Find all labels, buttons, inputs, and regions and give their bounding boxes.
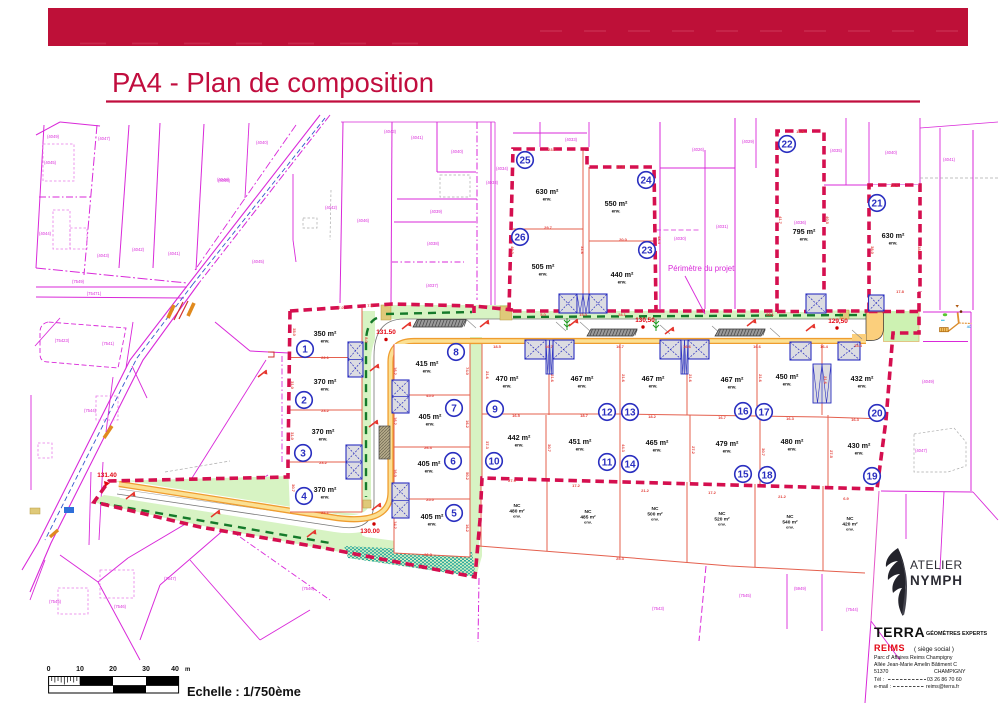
svg-text:31.0: 31.0 (290, 381, 295, 390)
svg-text:(4040): (4040) (256, 140, 269, 145)
svg-text:(7541): (7541) (102, 341, 115, 346)
svg-text:(4036): (4036) (794, 220, 807, 225)
svg-text:env.: env. (800, 237, 809, 242)
svg-text:(4031): (4031) (716, 224, 729, 229)
svg-text:20: 20 (109, 666, 117, 673)
svg-text:Tél :: Tél : (874, 677, 884, 683)
svg-text:630 m²: 630 m² (882, 231, 905, 240)
svg-text:env.: env. (783, 382, 792, 387)
svg-text:10: 10 (76, 666, 84, 673)
svg-text:26.3: 26.3 (424, 445, 433, 450)
svg-text:23: 23 (641, 245, 653, 256)
svg-text:( siège social ): ( siège social ) (914, 646, 954, 653)
svg-text:(7546): (7546) (302, 586, 315, 591)
svg-text:26.3: 26.3 (424, 552, 433, 557)
svg-text:21.6: 21.6 (485, 371, 490, 380)
svg-text:NC: NC (719, 511, 726, 517)
svg-text:(4042): (4042) (325, 205, 338, 210)
svg-text:env.: env. (618, 280, 627, 285)
svg-text:16.6: 16.6 (683, 344, 692, 349)
svg-text:465 m²: 465 m² (646, 438, 669, 447)
svg-text:48.4: 48.4 (657, 236, 662, 245)
svg-text:27.9: 27.9 (508, 478, 517, 483)
svg-text:3: 3 (300, 448, 306, 459)
svg-text:TERRA: TERRA (874, 624, 925, 640)
svg-text:NC: NC (652, 506, 659, 512)
svg-text:(7547): (7547) (164, 576, 177, 581)
svg-text:24: 24 (640, 175, 652, 186)
svg-text:(4037): (4037) (426, 283, 439, 288)
svg-text:405 m²: 405 m² (419, 412, 442, 421)
svg-text:(4044): (4044) (39, 231, 52, 236)
svg-text:27.2: 27.2 (691, 446, 696, 455)
svg-text:27.5: 27.5 (829, 450, 834, 459)
svg-text:467 m²: 467 m² (721, 375, 744, 384)
svg-text:15: 15 (737, 469, 749, 480)
svg-text:16.7: 16.7 (545, 344, 554, 349)
svg-text:21.6: 21.6 (688, 374, 693, 383)
svg-text:16.0: 16.0 (393, 469, 398, 478)
svg-text:(4040): (4040) (885, 150, 898, 155)
svg-text:74.0: 74.0 (465, 367, 470, 376)
svg-text:17.2: 17.2 (572, 483, 581, 488)
svg-text:22: 22 (781, 139, 793, 150)
svg-text:(4041): (4041) (168, 251, 181, 256)
svg-text:(4042): (4042) (132, 247, 145, 252)
svg-text:(4033): (4033) (565, 137, 578, 142)
svg-text:40: 40 (171, 666, 179, 673)
svg-text:env.: env. (889, 241, 898, 246)
svg-text:17.3: 17.3 (616, 164, 625, 169)
svg-text:12: 12 (601, 407, 613, 418)
svg-text:(4043): (4043) (97, 253, 110, 258)
svg-text:16.2: 16.2 (465, 524, 470, 533)
svg-text:(4047): (4047) (915, 448, 928, 453)
svg-text:(7544): (7544) (846, 607, 859, 612)
svg-text:38.2: 38.2 (917, 246, 922, 255)
svg-text:20.0: 20.0 (619, 237, 628, 242)
svg-text:(4049): (4049) (922, 379, 935, 384)
svg-text:(7545): (7545) (49, 599, 62, 604)
svg-text:430 m²: 430 m² (848, 441, 871, 450)
svg-text:reims@terra.fr: reims@terra.fr (926, 684, 959, 690)
svg-text:(7543): (7543) (652, 606, 665, 611)
svg-text:38.0: 38.0 (870, 246, 875, 255)
svg-text:(75471): (75471) (87, 291, 102, 296)
svg-text:10: 10 (488, 456, 500, 467)
svg-text:ATELIER: ATELIER (910, 558, 963, 572)
svg-text:(4038): (4038) (427, 241, 440, 246)
svg-text:41.7: 41.7 (778, 216, 783, 225)
svg-text:23.2: 23.2 (319, 460, 328, 465)
svg-text:18: 18 (761, 470, 773, 481)
svg-text:17: 17 (758, 407, 770, 418)
svg-text:370 m²: 370 m² (314, 377, 337, 386)
svg-text:25.0: 25.0 (426, 497, 435, 502)
svg-text:env.: env. (786, 525, 794, 530)
svg-text:8.0: 8.0 (364, 337, 369, 343)
svg-text:PA4 - Plan de composition: PA4 - Plan de composition (112, 67, 434, 98)
svg-text:4C: 4C (967, 325, 972, 329)
svg-text:(5949): (5949) (794, 586, 807, 591)
svg-text:(4047): (4047) (98, 136, 111, 141)
svg-text:17.8: 17.8 (896, 289, 905, 294)
svg-text:CHAMPIGNY: CHAMPIGNY (934, 669, 966, 675)
svg-text:550 m²: 550 m² (605, 199, 628, 208)
svg-text:2: 2 (301, 395, 307, 406)
svg-text:env.: env. (543, 197, 552, 202)
svg-text:16: 16 (737, 406, 749, 417)
svg-text:18.7: 18.7 (580, 413, 589, 418)
svg-text:25.3: 25.3 (616, 556, 625, 561)
svg-text:env.: env. (321, 495, 330, 500)
svg-text:env.: env. (515, 443, 524, 448)
svg-text:env.: env. (858, 384, 867, 389)
svg-text:env.: env. (653, 448, 662, 453)
svg-text:21.6: 21.6 (550, 374, 555, 383)
svg-text:30: 30 (142, 666, 150, 673)
svg-text:21.2: 21.2 (778, 494, 787, 499)
svg-text:Périmètre du projet: Périmètre du projet (668, 264, 735, 273)
svg-text:31.0: 31.0 (290, 432, 295, 441)
svg-text:31.6: 31.6 (580, 246, 585, 255)
svg-text:451 m²: 451 m² (569, 437, 592, 446)
svg-text:795 m²: 795 m² (793, 227, 816, 236)
svg-text:4: 4 (301, 491, 307, 502)
svg-text:env.: env. (788, 447, 797, 452)
svg-text:16.6: 16.6 (753, 344, 762, 349)
svg-text:(4045): (4045) (252, 259, 265, 264)
svg-text:env.: env. (426, 422, 435, 427)
svg-text:(75423): (75423) (55, 338, 70, 343)
svg-text:env.: env. (321, 387, 330, 392)
svg-text:45.0: 45.0 (426, 393, 435, 398)
svg-text:env.: env. (584, 520, 592, 525)
svg-text:22.1: 22.1 (321, 510, 330, 515)
svg-text:(4041): (4041) (943, 157, 956, 162)
svg-text:(4046): (4046) (357, 218, 370, 223)
svg-text:env.: env. (846, 527, 854, 532)
svg-text:130,50: 130,50 (635, 317, 655, 324)
svg-text:env.: env. (855, 451, 864, 456)
svg-text:env.: env. (425, 469, 434, 474)
svg-text:480 m²: 480 m² (781, 437, 804, 446)
svg-text:env.: env. (723, 449, 732, 454)
svg-text:450 m²: 450 m² (776, 372, 799, 381)
svg-text:470 m²: 470 m² (496, 374, 519, 383)
svg-text:505 m²: 505 m² (532, 262, 555, 271)
svg-text:370 m²: 370 m² (314, 485, 337, 494)
svg-text:0: 0 (47, 666, 51, 673)
svg-text:479 m²: 479 m² (716, 439, 739, 448)
svg-text:405 m²: 405 m² (421, 512, 444, 521)
svg-text:(4049): (4049) (47, 134, 60, 139)
svg-text:131.40: 131.40 (97, 472, 117, 479)
svg-text:17.2: 17.2 (708, 490, 717, 495)
svg-text:7.0: 7.0 (338, 305, 344, 310)
svg-text:28.1: 28.1 (766, 312, 775, 317)
svg-text:432 m²: 432 m² (851, 374, 874, 383)
svg-text:21.6: 21.6 (823, 376, 828, 385)
svg-text:18.2: 18.2 (648, 414, 657, 419)
svg-text:49.2: 49.2 (510, 246, 515, 255)
svg-text:(4026): (4026) (692, 147, 705, 152)
svg-text:28.1: 28.1 (618, 312, 627, 317)
svg-text:NC: NC (787, 514, 794, 520)
svg-text:NC: NC (585, 509, 592, 515)
svg-text:16.7: 16.7 (616, 344, 625, 349)
svg-text:30.7: 30.7 (547, 444, 552, 453)
svg-text:25: 25 (519, 155, 531, 166)
svg-text:16.4: 16.4 (820, 344, 829, 349)
svg-text:440 m²: 440 m² (611, 270, 634, 279)
svg-text:21: 21 (871, 198, 883, 209)
svg-text:env.: env. (513, 514, 521, 519)
svg-text:131.50: 131.50 (376, 329, 396, 336)
svg-text:(4039): (4039) (430, 209, 443, 214)
svg-text:Parc d’ Affaires Reims Cham: Parc d’ Affaires Reims Champigny (874, 655, 953, 661)
svg-text:130.00: 130.00 (360, 528, 380, 535)
svg-text:51370: 51370 (874, 669, 889, 675)
svg-text:(4030): (4030) (674, 236, 687, 241)
svg-text:44.3: 44.3 (621, 444, 626, 453)
svg-text:8: 8 (453, 347, 459, 358)
svg-text:NC: NC (514, 503, 521, 509)
svg-text:env.: env. (649, 384, 658, 389)
svg-text:(4043): (4043) (384, 129, 397, 134)
svg-text:(4034): (4034) (496, 166, 509, 171)
svg-text:415 m²: 415 m² (416, 359, 439, 368)
svg-text:m: m (185, 667, 190, 673)
svg-text:14: 14 (624, 459, 636, 470)
svg-text:129,50: 129,50 (828, 318, 848, 325)
svg-text:19: 19 (866, 471, 878, 482)
svg-text:env.: env. (319, 437, 328, 442)
svg-text:env.: env. (728, 385, 737, 390)
svg-text:16.2: 16.2 (465, 420, 470, 429)
svg-text:env.: env. (539, 272, 548, 277)
svg-text:630 m²: 630 m² (536, 187, 559, 196)
svg-text:14.2: 14.2 (393, 521, 398, 530)
svg-text:18.5: 18.5 (493, 344, 502, 349)
svg-text:11: 11 (602, 457, 613, 468)
svg-text:(7545): (7545) (739, 593, 752, 598)
svg-text:REIMS: REIMS (874, 643, 905, 653)
svg-text:9: 9 (492, 404, 498, 415)
svg-text:(7549): (7549) (72, 279, 85, 284)
svg-text:NYMPH: NYMPH (910, 573, 963, 588)
svg-text:13: 13 (624, 407, 636, 418)
svg-text:16.7: 16.7 (718, 415, 727, 420)
svg-text:(4029): (4029) (742, 139, 755, 144)
svg-text:14.9: 14.9 (796, 129, 805, 134)
svg-text:(7546): (7546) (114, 604, 127, 609)
svg-text:(4041): (4041) (411, 135, 424, 140)
svg-text:370 m²: 370 m² (312, 427, 335, 436)
svg-text:Echelle : 1/750ème: Echelle : 1/750ème (187, 684, 301, 699)
svg-text:(4040): (4040) (451, 149, 464, 154)
svg-text:GÉOMÈTRES EXPERTS: GÉOMÈTRES EXPERTS (926, 629, 988, 637)
svg-text:03 26 86 70 60: 03 26 86 70 60 (927, 677, 962, 683)
svg-text:5.0: 5.0 (540, 312, 546, 317)
svg-text:16.3: 16.3 (786, 416, 795, 421)
svg-text:50.2: 50.2 (465, 472, 470, 481)
svg-text:16.5: 16.5 (512, 413, 521, 418)
svg-text:21.6: 21.6 (758, 374, 763, 383)
svg-text:Allée Jean-Marie Amelin B: Allée Jean-Marie Amelin Bâtiment C (874, 662, 957, 668)
svg-text:37.3: 37.3 (485, 441, 490, 450)
svg-text:40.5: 40.5 (825, 216, 830, 225)
svg-text:env.: env. (321, 339, 330, 344)
svg-text:30.7: 30.7 (761, 448, 766, 457)
svg-text:(7544): (7544) (84, 408, 97, 413)
svg-text:26: 26 (514, 232, 526, 243)
svg-text:env.: env. (612, 209, 621, 214)
svg-text:env.: env. (428, 522, 437, 527)
svg-text:17.2: 17.2 (890, 183, 899, 188)
svg-text:(4045): (4045) (44, 160, 57, 165)
svg-text:15.4: 15.4 (854, 343, 863, 348)
svg-text:405 m²: 405 m² (418, 459, 441, 468)
svg-text:29.7: 29.7 (544, 225, 553, 230)
svg-text:env.: env. (423, 369, 432, 374)
svg-text:30.7: 30.7 (291, 484, 296, 493)
svg-text:1: 1 (302, 344, 308, 355)
svg-text:21.2: 21.2 (641, 488, 650, 493)
svg-text:(4035): (4035) (830, 148, 843, 153)
svg-text:467 m²: 467 m² (571, 374, 594, 383)
svg-text:env.: env. (576, 447, 585, 452)
svg-text:7: 7 (451, 403, 457, 414)
svg-text:env.: env. (578, 384, 587, 389)
svg-text:NC: NC (847, 516, 854, 522)
svg-text:23.2: 23.2 (321, 408, 330, 413)
svg-text:35.0: 35.0 (292, 328, 297, 337)
svg-text:6: 6 (450, 456, 456, 467)
svg-text:6.9: 6.9 (843, 496, 849, 501)
svg-text:e-mail :: e-mail : (874, 684, 891, 690)
svg-text:7.5: 7.5 (367, 303, 373, 308)
svg-text:15.0: 15.0 (579, 312, 588, 317)
svg-text:(4046): (4046) (218, 178, 231, 183)
svg-text:16.3: 16.3 (851, 417, 860, 422)
svg-text:21.6: 21.6 (621, 374, 626, 383)
svg-text:env.: env. (503, 384, 512, 389)
svg-text:(4033): (4033) (486, 180, 499, 185)
svg-text:23.7: 23.7 (548, 147, 557, 152)
svg-text:467 m²: 467 m² (642, 374, 665, 383)
svg-text:env.: env. (718, 522, 726, 527)
svg-text:20: 20 (871, 408, 883, 419)
svg-text:16.2: 16.2 (393, 367, 398, 376)
svg-text:5: 5 (451, 508, 457, 519)
svg-text:350 m²: 350 m² (314, 329, 337, 338)
svg-text:22.1: 22.1 (321, 355, 330, 360)
svg-text:442 m²: 442 m² (508, 433, 531, 442)
svg-text:env.: env. (651, 517, 659, 522)
svg-text:16.2: 16.2 (393, 417, 398, 426)
